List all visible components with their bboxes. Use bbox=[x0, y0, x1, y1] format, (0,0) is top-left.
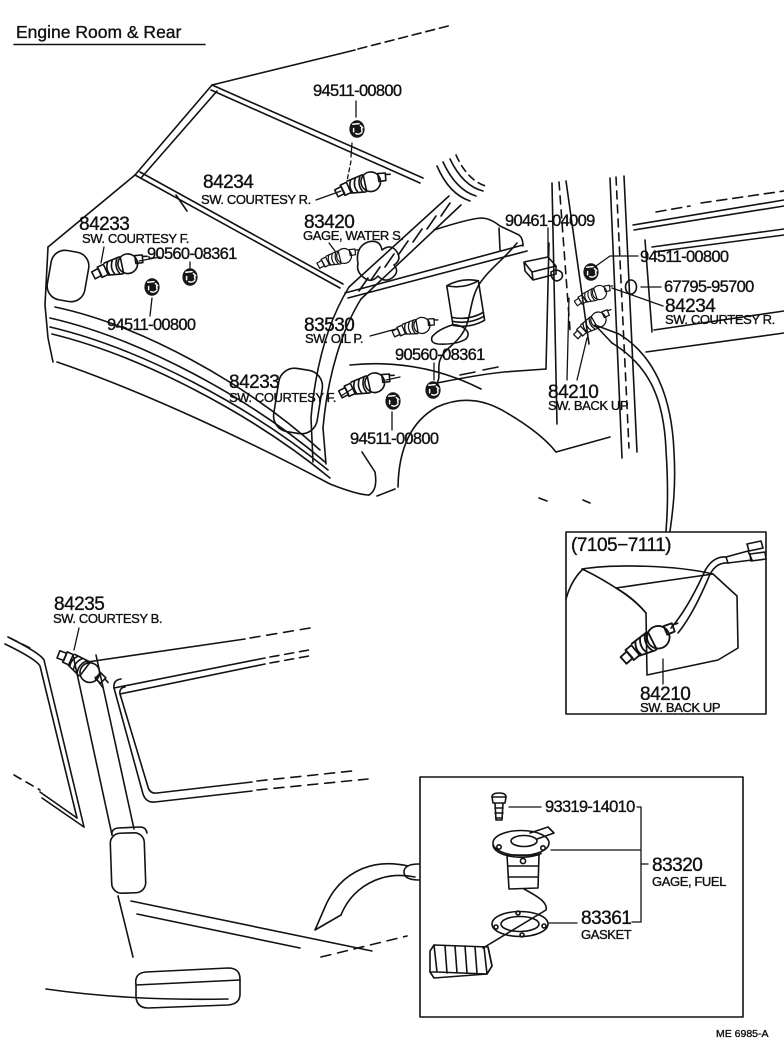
svg-text:GASKET: GASKET bbox=[581, 927, 632, 942]
svg-text:94511-00800: 94511-00800 bbox=[107, 316, 196, 334]
svg-text:Engine Room & Rear: Engine Room & Rear bbox=[16, 22, 182, 42]
svg-text:GAGE, WATER S.: GAGE, WATER S. bbox=[303, 228, 404, 243]
svg-text:67795-95700: 67795-95700 bbox=[664, 278, 754, 296]
svg-text:SW. COURTESY F.: SW. COURTESY F. bbox=[229, 390, 336, 405]
svg-text:83320: 83320 bbox=[652, 855, 702, 876]
svg-text:SW. BACK UP: SW. BACK UP bbox=[640, 700, 720, 715]
svg-text:SW. COURTESY B.: SW. COURTESY B. bbox=[53, 611, 162, 626]
svg-text:94511-00800: 94511-00800 bbox=[640, 248, 729, 266]
svg-text:ME 6985-A: ME 6985-A bbox=[716, 1028, 769, 1040]
svg-text:90560-08361: 90560-08361 bbox=[147, 245, 237, 263]
svg-text:90461-04009: 90461-04009 bbox=[505, 212, 595, 230]
svg-text:(7105−7111): (7105−7111) bbox=[571, 535, 671, 556]
svg-text:93319-14010: 93319-14010 bbox=[545, 798, 635, 816]
svg-text:90560-08361: 90560-08361 bbox=[395, 346, 485, 364]
svg-text:SW. COURTESY F.: SW. COURTESY F. bbox=[82, 231, 189, 246]
svg-text:SW. COURTESY R.: SW. COURTESY R. bbox=[665, 312, 775, 327]
svg-text:SW. BACK UP: SW. BACK UP bbox=[548, 398, 628, 413]
svg-text:SW. COURTESY R.: SW. COURTESY R. bbox=[201, 192, 311, 207]
svg-text:SW. OIL P.: SW. OIL P. bbox=[305, 331, 363, 346]
svg-text:GAGE, FUEL: GAGE, FUEL bbox=[652, 874, 726, 889]
svg-text:84234: 84234 bbox=[203, 172, 254, 193]
svg-text:94511-00800: 94511-00800 bbox=[313, 82, 402, 100]
svg-text:83361: 83361 bbox=[581, 908, 631, 929]
svg-text:94511-00800: 94511-00800 bbox=[350, 430, 439, 448]
